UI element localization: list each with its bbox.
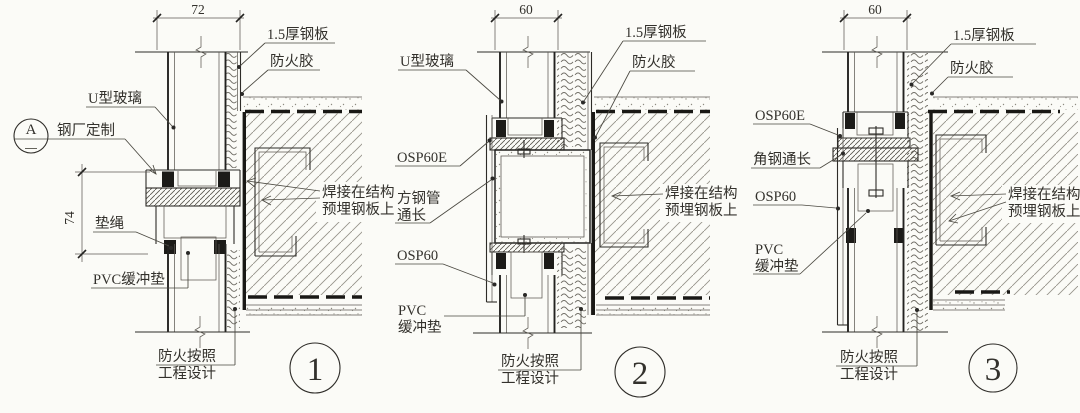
detail-3-label-pvc-line2: 缓冲垫 [755, 258, 799, 275]
detail-2-square-tube [495, 140, 590, 253]
detail-3-label-osp-top: OSP60E [755, 108, 805, 124]
detail-1-label-cushion-rope: 垫绳 [95, 215, 124, 232]
detail-2-label-fire-glue: 防火胶 [632, 54, 676, 71]
detail-2-label-square-tube-line2: 通长 [397, 207, 426, 224]
detail-2-label-fire-line2: 工程设计 [501, 370, 559, 387]
detail-2-label-osp-bottom: OSP60 [397, 248, 438, 264]
detail-1-label-factory-custom: 钢厂定制 [57, 122, 115, 139]
detail-2-label-weld-line1: 焊接在结构 [665, 185, 738, 202]
detail-3-dim-top-value: 60 [868, 2, 882, 17]
detail-2-label-weld-line2: 预埋钢板上 [665, 201, 738, 219]
detail-3-label-weld-line1: 焊接在结构 [1008, 186, 1080, 203]
detail-1-label-pvc-pad: PVC缓冲垫 [93, 271, 165, 288]
detail-3-label-fire-line1: 防火按照 [840, 349, 898, 366]
detail-3-label-pvc-line1: PVC [755, 242, 783, 258]
detail-3-label-steel-plate: 1.5厚钢板 [953, 26, 1015, 44]
detail-1-label-fire-line1: 防火按照 [158, 348, 216, 365]
detail-3-label-fire-line2: 工程设计 [840, 366, 898, 383]
detail-2-label-u-glass: U型玻璃 [400, 53, 454, 70]
detail-1-bubble-number: 1 [307, 352, 324, 388]
detail-2-label-pvc-line1: PVC [398, 303, 426, 319]
detail-1-label-steel-plate: 1.5厚钢板 [267, 25, 329, 43]
detail-1-label-fire-line2: 工程设计 [158, 365, 216, 382]
detail-1-label-fire-glue: 防火胶 [270, 53, 314, 70]
detail-2-label-steel-plate: 1.5厚钢板 [625, 23, 687, 41]
detail-1-label-weld-line2: 预埋钢板上 [322, 200, 395, 218]
detail-3-label-osp-bottom: OSP60 [755, 189, 796, 205]
detail-2-bubble-number: 2 [632, 356, 649, 392]
detail-1-dim-side-value: 74 [62, 211, 77, 225]
detail-3-bubble-number: 3 [985, 352, 1002, 388]
detail-2-label-square-tube-line1: 方钢管 [397, 190, 441, 207]
detail-2-label-pvc-line2: 缓冲垫 [398, 319, 442, 336]
detail-1-label-weld-line1: 焊接在结构 [322, 184, 395, 201]
detail-drawing-canvas: 72 [0, 0, 1080, 413]
detail-2-label-osp-top: OSP60E [397, 150, 447, 166]
detail-3-label-weld-line2: 预埋钢板上 [1008, 202, 1080, 220]
facade-detail-sheet: 72 [0, 0, 1080, 413]
detail-1-dim-top-value: 72 [191, 2, 205, 17]
detail-3-label-fire-glue: 防火胶 [950, 60, 994, 77]
detail-2-dim-top-value: 60 [519, 2, 533, 17]
detail-1-marker-letter: A [26, 122, 37, 138]
detail-2-label-fire-line1: 防火按照 [501, 353, 559, 370]
detail-3-label-angle-steel: 角钢通长 [753, 151, 811, 168]
detail-1-label-u-glass: U型玻璃 [88, 90, 142, 107]
